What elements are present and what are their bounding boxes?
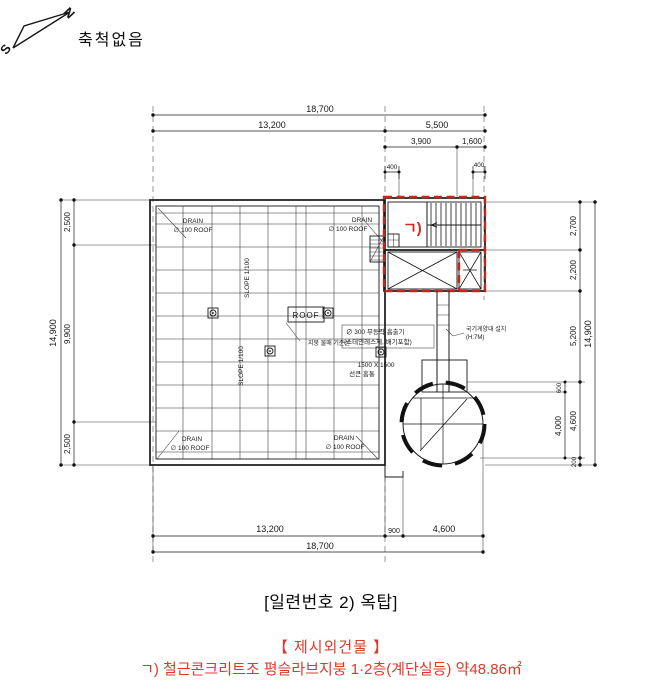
north-arrow: N S [0, 4, 78, 57]
flagpole-label-2: (H:7M) [466, 335, 484, 341]
vent-label-2: (스테인레스제, 배기포함) [344, 337, 412, 346]
right-section: 국기게양대 설치 (H:7M) [385, 291, 506, 477]
slope-label-2: SLOPE 1/100 [238, 346, 245, 386]
dim-top-overall: 18,700 [306, 104, 334, 114]
dim-right-600: 600 [556, 382, 563, 393]
dim-top-400-right: 400 [474, 162, 485, 169]
dim-right-c: 5,200 [569, 325, 578, 346]
dim-right-4000: 4,000 [554, 415, 563, 436]
dim-left-c: 2,500 [63, 433, 72, 454]
dim-top-400-left: 400 [387, 164, 398, 171]
compass-south-label: S [0, 41, 14, 57]
drain-label-br-2: ∅ 100 ROOF [326, 444, 365, 451]
dimension-ticks [59, 113, 596, 553]
slope-label-1: SLOPE 1/100 [244, 258, 251, 298]
dim-right-200: 200 [571, 456, 578, 467]
dim-right-b: 2,200 [569, 259, 578, 280]
figure-caption: [일련번호 2) 옥탑] [0, 588, 662, 613]
skylight-xbox [388, 252, 457, 289]
drain-label-tr-1: DRAIN [352, 217, 373, 224]
sunken-label-2: 선큰 홈통 [349, 369, 375, 378]
drain-symbol-icon [208, 308, 218, 318]
drain-label-tl-1: DRAIN [183, 218, 204, 225]
drain-label-tr-2: ∅ 100 ROOF [329, 226, 368, 233]
drain-label-br-1: DRAIN [334, 435, 355, 442]
roof-label: ROOF [292, 311, 319, 320]
dim-top-left: 13,200 [258, 120, 286, 130]
dimension-lines [61, 115, 595, 552]
roof-ladder-icon [370, 236, 384, 262]
dim-bottom-right: 4,600 [433, 524, 456, 534]
stair-treads [427, 203, 481, 246]
flagpole-label-1: 국기게양대 설치 [466, 325, 506, 333]
dim-left-b: 9,900 [63, 323, 72, 344]
duct-box [388, 234, 399, 247]
building-mark-label: ㄱ) [403, 220, 422, 237]
dim-left-overall: 14,900 [48, 319, 58, 347]
drain-label-tl-2: ∅ 100 ROOF [174, 227, 213, 234]
dimension-texts: 18,700 13,200 5,500 3,900 1,600 400 400 … [48, 104, 593, 551]
drain-symbol-icon [265, 346, 275, 356]
dim-top-sub2: 1,600 [462, 137, 483, 146]
dim-left-a: 2,500 [63, 211, 72, 232]
drain-symbol-icon [323, 308, 333, 318]
drawing-page: N S 축척없음 [0, 0, 662, 700]
dim-bottom-overall: 18,700 [306, 541, 334, 551]
dim-right-d: 4,600 [569, 410, 578, 431]
axis-lines [61, 106, 597, 562]
slope-ref-label: 지붕 물매 기준선 [308, 339, 350, 347]
dim-right-a: 2,700 [569, 215, 578, 236]
dim-bottom-left: 13,200 [256, 524, 284, 534]
scale-note: 축척없음 [78, 31, 145, 49]
vent-label-1: ∅ 300 무동력 흡출기 [346, 327, 405, 336]
dim-top-right: 5,500 [426, 120, 449, 130]
drain-label-bl-2: ∅ 100 ROOF [171, 445, 210, 452]
dim-right-overall: 14,900 [583, 320, 593, 348]
sunken-label-1: 1500 X 1500 [358, 362, 395, 369]
annotation-title: 【 제시외건물 】 [0, 636, 662, 657]
compass-north-label: N [61, 4, 78, 21]
shaft-cell [459, 252, 481, 289]
annotation-line: ㄱ) 철근콘크리트조 평슬라브지붕 1·2층(계단실등) 약48.86㎡ [0, 658, 662, 679]
spiral-stair [402, 383, 485, 466]
dim-top-sub1: 3,900 [411, 137, 432, 146]
dim-bottom-900: 900 [388, 528, 400, 535]
penthouse: ㄱ) [370, 197, 485, 291]
drain-label-bl-1: DRAIN [182, 436, 203, 443]
